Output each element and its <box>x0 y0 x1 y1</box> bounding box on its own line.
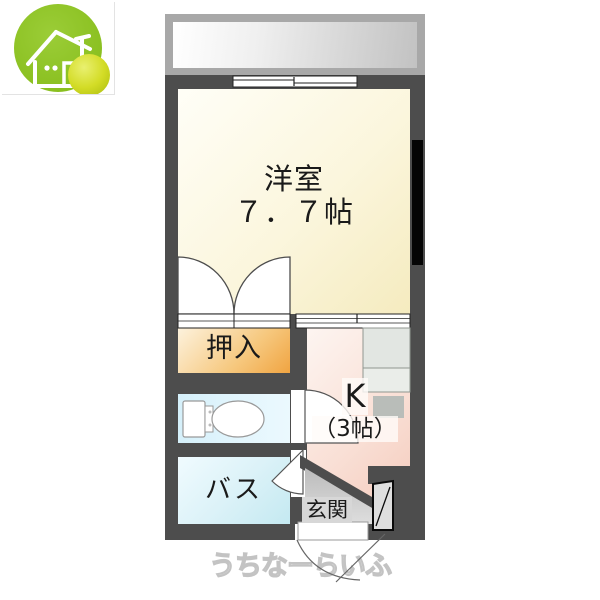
label-bath: バス <box>178 476 290 506</box>
label-entrance: 玄関 <box>302 497 352 523</box>
room-name: K <box>342 378 369 415</box>
room-size: （3帖） <box>312 416 398 442</box>
toilet-top-view-icon <box>183 401 264 437</box>
room-name: 洋室 <box>178 163 410 196</box>
room-size: ７．７帖 <box>178 196 410 229</box>
double-door-icon <box>178 257 290 328</box>
window-right-icon <box>412 140 423 265</box>
house-icon <box>2 2 114 94</box>
label-closet: 押入 <box>178 333 290 364</box>
sliding-window-icon <box>233 76 357 87</box>
label-kitchen: K （3帖） <box>300 378 410 442</box>
site-logo <box>2 2 115 95</box>
floorplan-page: うちなーらいふ <box>0 0 600 600</box>
sliding-window-icon <box>296 314 410 328</box>
label-western-room: 洋室 ７．７帖 <box>178 163 410 230</box>
